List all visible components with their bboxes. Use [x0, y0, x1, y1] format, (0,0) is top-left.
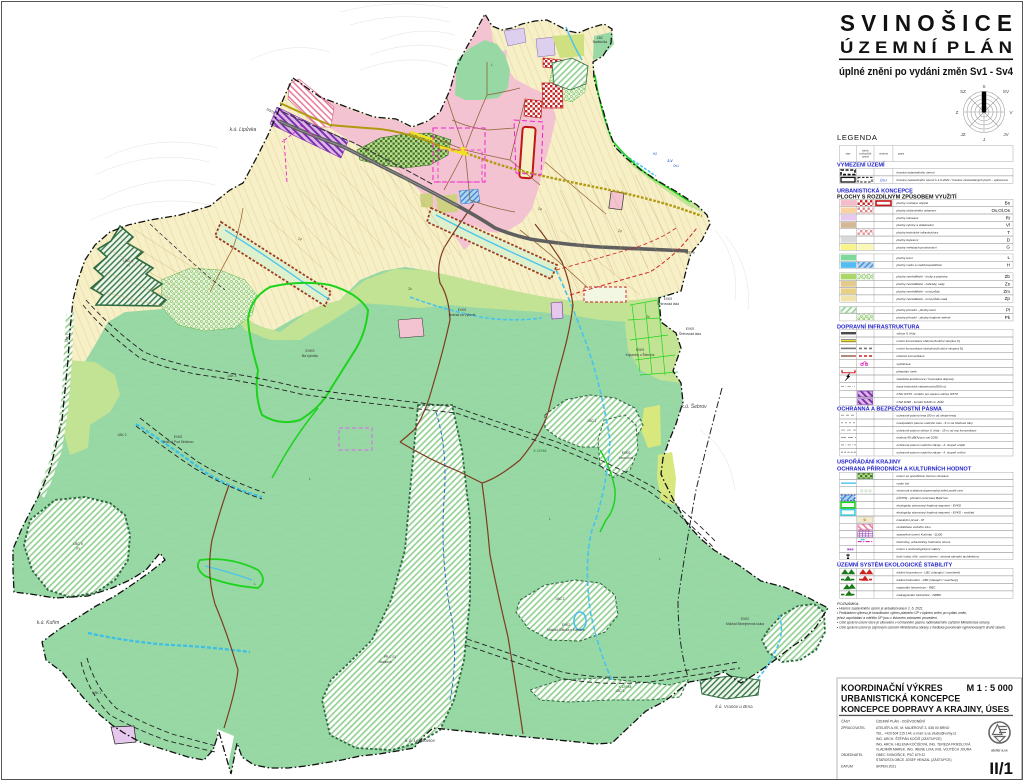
svg-text:H2: H2 [653, 152, 657, 156]
svg-text:Zp: Zp [298, 237, 302, 241]
svg-text:Mokřad Bezejmenná louka: Mokřad Bezejmenná louka [726, 622, 764, 626]
svg-text:POZNÁMKA:: POZNÁMKA: [837, 602, 859, 606]
svg-text:ekologicky významný krajinný s: ekologicky významný krajinný segment - E… [897, 503, 962, 507]
svg-text:SV: SV [1003, 89, 1010, 94]
svg-text:k.ú. Kuřim: k.ú. Kuřim [37, 620, 60, 626]
svg-text:ochranné pásmo vodního zdroje: ochranné pásmo vodního zdroje - II. stup… [897, 443, 967, 447]
svg-text:EVKS: EVKS [458, 308, 467, 312]
svg-text:Zm: Zm [1003, 289, 1010, 294]
svg-text:k.ú. Vranov u Brna: k.ú. Vranov u Brna [715, 704, 753, 709]
svg-text:účelové komunikace: účelové komunikace [897, 354, 925, 358]
svg-text:lokální biokoridor - LBK (stáv: lokální biokoridor - LBK (stávající / na… [897, 578, 958, 582]
svg-text:trasa technické vybavenosti (6: trasa technické vybavenosti (600 m) [897, 385, 947, 389]
svg-text:Pl: Pl [1006, 308, 1010, 313]
svg-text:plochy veřejných prostranství: plochy veřejných prostranství [896, 245, 938, 249]
svg-text:KONCEPCE DOPRAVY A KRAJINY, ÚS: KONCEPCE DOPRAVY A KRAJINY, ÚSES [841, 703, 1009, 714]
svg-text:L: L [254, 582, 256, 586]
svg-text:Bs: Bs [1005, 201, 1011, 206]
svg-text:hranice katastrálního území: hranice katastrálního území [897, 170, 936, 174]
svg-text:úplné zněni po vydáni změn Sv1: úplné zněni po vydáni změn Sv1 - Sv4 [839, 66, 1014, 78]
svg-text:stromová a alejová doprovodná: stromová a alejová doprovodná zeleň podé… [897, 489, 964, 493]
svg-text:Mokřad na Výhoně: Mokřad na Výhoně [449, 313, 476, 317]
svg-text:území se specifickou formou re: území se specifickou formou rekreace [897, 474, 949, 478]
svg-text:ochranné pásmo vodního zdroje: ochranné pásmo vodního zdroje - II. stup… [897, 451, 967, 455]
svg-text:plochy zemědělské - louky a pa: plochy zemědělské - louky a pastviny [896, 275, 949, 279]
svg-text:k.ú. Lipůvka: k.ú. Lipůvka [230, 126, 257, 133]
svg-text:L: L [309, 477, 311, 481]
svg-text:Vl: Vl [1006, 223, 1010, 228]
svg-text:Nadbočka: Nadbočka [593, 40, 608, 44]
svg-text:plochy občanského vybavení: plochy občanského vybavení [896, 209, 938, 213]
svg-text:K 129/MI: K 129/MI [619, 685, 632, 689]
svg-text:k.ú. Lelekovice: k.ú. Lelekovice [405, 738, 435, 743]
svg-text:Zp: Zp [618, 229, 622, 233]
svg-text:Z: Z [956, 110, 959, 115]
svg-text:cyklotrasa: cyklotrasa [897, 362, 911, 366]
svg-text:ING. ARCH. HELENA KOČIŠOVÁ, IN: ING. ARCH. HELENA KOČIŠOVÁ, ING. TEREZA … [876, 741, 971, 746]
svg-text:II/1: II/1 [989, 759, 1013, 778]
svg-text:CNZ D348 - koridor D348 vč. ZÚ: CNZ D348 - koridor D348 vč. ZÚR [897, 400, 945, 404]
svg-text:JV: JV [1003, 132, 1009, 137]
svg-text:KOORDINAČNÍ VÝKRES: KOORDINAČNÍ VÝKRES [841, 682, 943, 693]
svg-text:EVKS: EVKS [305, 349, 315, 353]
svg-text:plochy dopravní: plochy dopravní [896, 238, 920, 242]
svg-text:K 129/MI: K 129/MI [534, 449, 547, 453]
svg-text:SZ: SZ [960, 89, 966, 94]
svg-text:L: L [491, 63, 493, 67]
svg-text:(ÚCHS) - přírodní rezervace Ba: (ÚCHS) - přírodní rezervace Babí lom [897, 496, 949, 500]
svg-text:L: L [1007, 255, 1010, 260]
svg-text:revitalizace vodního toku: revitalizace vodního toku [897, 525, 931, 529]
svg-text:vodní tok: vodní tok [897, 481, 910, 485]
svg-text:T: T [1007, 230, 1010, 235]
svg-text:ZPRACOVATEL: ZPRACOVATEL [841, 726, 865, 730]
svg-text:zastávka autobusové / hromadné: zastávka autobusové / hromadné dopravy [896, 377, 955, 381]
svg-text:lokální biocentrum - LBC (stáv: lokální biocentrum - LBC (stávající / na… [897, 570, 960, 574]
svg-text:ING. ARCH. ŠTĚPÁN KOČIŠ (ZÁSTU: ING. ARCH. ŠTĚPÁN KOČIŠ (ZÁSTUPCE) [876, 736, 942, 741]
svg-text:M 1 : 5 000: M 1 : 5 000 [967, 683, 1013, 693]
svg-text:Šebrovská lada: Šebrovská lada [679, 331, 701, 336]
svg-text:L: L [549, 517, 551, 521]
svg-text:plochy technické infrastruktur: plochy technické infrastruktury [896, 231, 939, 235]
svg-text:URBANISTICKÁ KONCEPCE: URBANISTICKÁ KONCEPCE [841, 694, 960, 704]
svg-text:LBC 2: LBC 2 [556, 597, 565, 601]
svg-text:SRPEN 2021: SRPEN 2021 [876, 765, 896, 769]
svg-text:LBK 3: LBK 3 [228, 374, 237, 378]
svg-text:VLADIMÍR MAREK, ING. IRENE LIX: VLADIMÍR MAREK, ING. IRENE LIXA, ING. VO… [876, 747, 972, 752]
svg-text:TEL. +420 604 215 144, e-mail:: TEL. +420 604 215 144, e-mail: a.ve.stud… [876, 731, 957, 735]
svg-text:izofona 55 dB(A) pro rok 2030: izofona 55 dB(A) pro rok 2030 [896, 436, 938, 440]
svg-text:nadregionální biokoridor - NRB: nadregionální biokoridor - NRBK [897, 593, 942, 597]
svg-text:ATELIÉR A.VE, M. MAJEROVÉ 3, 6: ATELIÉR A.VE, M. MAJEROVÉ 3, 638 00 BRNO [876, 725, 950, 730]
svg-text:PR C 01: PR C 01 [384, 655, 396, 659]
svg-text:LBC 3: LBC 3 [616, 689, 625, 693]
svg-text:CNU II/379 - koridor pro úprav: CNU II/379 - koridor pro úpravu silnice … [897, 392, 958, 396]
svg-text:místní komunikace sběrná (funk: místní komunikace sběrná (funkční skupin… [897, 339, 961, 343]
svg-text:• Celé správní území obce je: • Celé správní území obce je situováno v… [837, 621, 990, 625]
svg-text:ochranné pásmo silnice II. tří: ochranné pásmo silnice II. třídy - 15 m … [897, 428, 977, 432]
svg-text:J: J [983, 137, 985, 142]
svg-text:LBK 2: LBK 2 [118, 433, 127, 437]
svg-text:stav: stav [846, 152, 851, 156]
svg-text:území: území [862, 155, 869, 159]
svg-text:✿: ✿ [863, 518, 866, 522]
svg-text:EVKS: EVKS [686, 327, 695, 331]
svg-text:Kopaniny u Šebrova: Kopaniny u Šebrova [626, 352, 655, 357]
svg-text:EVKS: EVKS [636, 348, 645, 352]
svg-text:OBEC SVINOŠICE, PSČ 679 22: OBEC SVINOŠICE, PSČ 679 22 [876, 752, 925, 757]
svg-text:plochy přírodní - plochy kraji: plochy přírodní - plochy krajinné zeleně [896, 315, 951, 319]
svg-text:S: S [982, 84, 985, 89]
svg-text:silnice II. třídy: silnice II. třídy [897, 331, 916, 335]
svg-text:boží muka, kříž, smírčí kámen: boží muka, kříž, smírčí kámen - drobná s… [897, 554, 980, 558]
svg-text:přejezdní úsek: přejezdní úsek [896, 369, 918, 373]
svg-text:EVKS: EVKS [622, 451, 631, 455]
svg-text:Ú Z E M N Í P L Á N: Ú Z E M N Í P L Á N [840, 38, 1012, 57]
svg-text:historicky, urbanisticky hodno: historicky, urbanisticky hodnotné území [897, 540, 952, 544]
svg-text:LBK 1: LBK 1 [93, 691, 102, 695]
svg-text:Ri: Ri [1006, 215, 1010, 220]
svg-text:manipulační pásmo vodního toku: manipulační pásmo vodního toku - 6 m od … [897, 421, 974, 425]
svg-text:OCHRANNÁ A BEZPEČNOSTNÍ PÁSMA: OCHRANNÁ A BEZPEČNOSTNÍ PÁSMA [837, 404, 942, 412]
svg-text:rezerva: rezerva [879, 152, 888, 156]
svg-text:Pl: Pl [126, 264, 129, 268]
svg-text:• Hranice zastavěného území j: • Hranice zastavěného území je aktualizo… [837, 607, 924, 611]
svg-text:VYMEZENÍ ÚZEMÍ: VYMEZENÍ ÚZEMÍ [837, 161, 885, 169]
svg-text:L: L [659, 557, 661, 561]
svg-text:ochranné pásmo lesa (50 m od o: ochranné pásmo lesa (50 m od okraje lesa… [897, 414, 957, 418]
svg-text:EVK2: EVK2 [562, 623, 570, 627]
svg-text:plochy zemědělské - orná půda: plochy zemědělské - orná půda malá [896, 297, 948, 301]
svg-text:EVK2: EVK2 [741, 617, 749, 621]
svg-text:plochy lesní: plochy lesní [896, 256, 914, 260]
svg-text:• Podkladem výkresu je koordi: • Podkladem výkresu je koordinační výkre… [837, 611, 967, 615]
svg-text:regionální biocentrum - RBC: regionální biocentrum - RBC [897, 585, 937, 589]
svg-text:plochy přírodní - plochy lesní: plochy přírodní - plochy lesní [896, 308, 938, 312]
svg-text:Pl: Pl [76, 547, 79, 551]
svg-text:popis: popis [898, 152, 905, 156]
svg-text:S V I N O Š I C E: S V I N O Š I C E [840, 9, 1012, 36]
svg-text:Zs: Zs [1005, 281, 1011, 286]
svg-text:OBJEDNATEL: OBJEDNATEL [841, 753, 863, 757]
svg-text:plochy smíšené obytné: plochy smíšené obytné [896, 201, 929, 205]
svg-text:STAROSTA OBCE JOSEF HENZAL (ZÁ: STAROSTA OBCE JOSEF HENZAL (ZÁSTUPCE) [876, 758, 951, 762]
svg-text:Zk: Zk [646, 315, 650, 319]
svg-text:hranice zastavěného území k 1.: hranice zastavěného území k 1.6.2021 / h… [897, 178, 1008, 182]
svg-text:zastavěné území Kuřimky - Q100: zastavěné území Kuřimky - Q100 [896, 532, 943, 536]
svg-text:DOPRAVNÍ INFRASTRUKTURA: DOPRAVNÍ INFRASTRUKTURA [837, 322, 920, 330]
svg-text:ÚZEMNÍ PLÁN - ODŮVODNĚNÍ: ÚZEMNÍ PLÁN - ODŮVODNĚNÍ [876, 719, 925, 724]
svg-text:plochy výroby a skladování: plochy výroby a skladování [896, 223, 935, 227]
svg-text:ekologicky významný krajinný s: ekologicky významný krajinný segment - E… [897, 511, 975, 515]
svg-text:PLOCHY S ROZDÍLNÝM ZPŮSOBEM VY: PLOCHY S ROZDÍLNÝM ZPŮSOBEM VYUŽITÍ [837, 192, 957, 200]
svg-text:jehož uspořádání a měřítko ÚP: jehož uspořádání a měřítko ÚP jsou v tis… [836, 616, 938, 620]
svg-text:plochy zemědělské - orná půda: plochy zemědělské - orná půda [896, 289, 940, 293]
svg-text:2-V: 2-V [667, 159, 673, 163]
svg-text:DATUM: DATUM [841, 765, 853, 769]
svg-text:G: G [1006, 245, 1010, 250]
svg-text:ÚZEMNÍ SYSTÉM EKOLOGICKÉ STABI: ÚZEMNÍ SYSTÉM EKOLOGICKÉ STABILITY [837, 561, 952, 569]
svg-text:Zk: Zk [408, 287, 412, 291]
svg-text:území s archeologickými nálezy: území s archeologickými nálezy [897, 547, 941, 551]
svg-text:k.ú. Šebrov: k.ú. Šebrov [681, 403, 707, 410]
svg-text:atelier a.ve: atelier a.ve [991, 749, 1008, 753]
svg-text:místní komunikace obslužná (fu: místní komunikace obslužná (funkční skup… [897, 347, 964, 351]
svg-text:■■■: ■■■ [847, 547, 854, 551]
svg-text:EVKS: EVKS [664, 297, 673, 301]
svg-text:Mokřad Pod Strážnou: Mokřad Pod Strážnou [163, 440, 194, 444]
svg-text:interakční prvek - IP: interakční prvek - IP [897, 518, 925, 522]
svg-text:Zp: Zp [538, 207, 542, 211]
svg-text:Lesní úval: Lesní úval [619, 456, 634, 460]
svg-text:EVKS: EVKS [174, 435, 183, 439]
svg-text:Zb: Zb [1005, 274, 1011, 279]
svg-text:LBC 1: LBC 1 [588, 419, 597, 423]
svg-text:Na rybníku: Na rybníku [302, 354, 319, 358]
svg-text:plochy zemědělské - zahrady, s: plochy zemědělské - zahrady, sady [896, 282, 946, 286]
svg-text:LBC 4: LBC 4 [123, 259, 133, 263]
svg-text:H: H [1007, 263, 1010, 268]
svg-text:• Celé správní území je zájmo: • Celé správní území je zájmovým územím … [837, 625, 1006, 629]
svg-text:Šebrovská lada: Šebrovská lada [657, 301, 679, 306]
svg-text:Zp: Zp [1005, 296, 1011, 301]
svg-text:Pk: Pk [1005, 315, 1011, 320]
svg-text:USPOŘÁDÁNÍ KRAJINY: USPOŘÁDÁNÍ KRAJINY [837, 458, 901, 466]
svg-text:OCHRANA PŘÍRODNÍCH A KULTURNÍC: OCHRANA PŘÍRODNÍCH A KULTURNÍCH HODNOT [837, 464, 972, 472]
svg-text:plochy vodní a vodohospodářské: plochy vodní a vodohospodářské [896, 263, 943, 267]
svg-text:LEGENDA: LEGENDA [837, 133, 878, 142]
svg-text:ÚS-I: ÚS-I [880, 177, 887, 182]
svg-text:Mokřad Olšinka u Kamene: Mokřad Olšinka u Kamene [547, 628, 585, 632]
svg-text:ČÁST: ČÁST [841, 719, 850, 724]
svg-text:II/379: II/379 [686, 251, 695, 255]
svg-text:plochy rekreace: plochy rekreace [896, 216, 919, 220]
svg-text:◇ ◇ ◇: ◇ ◇ ◇ [860, 488, 872, 493]
svg-text:Ov,Ol,Os: Ov,Ol,Os [991, 208, 1010, 213]
svg-text:Ov1: Ov1 [673, 164, 679, 168]
svg-text:LBC 5: LBC 5 [73, 542, 83, 546]
svg-text:JZ: JZ [960, 132, 965, 137]
svg-text:Skalková: Skalková [379, 660, 392, 664]
